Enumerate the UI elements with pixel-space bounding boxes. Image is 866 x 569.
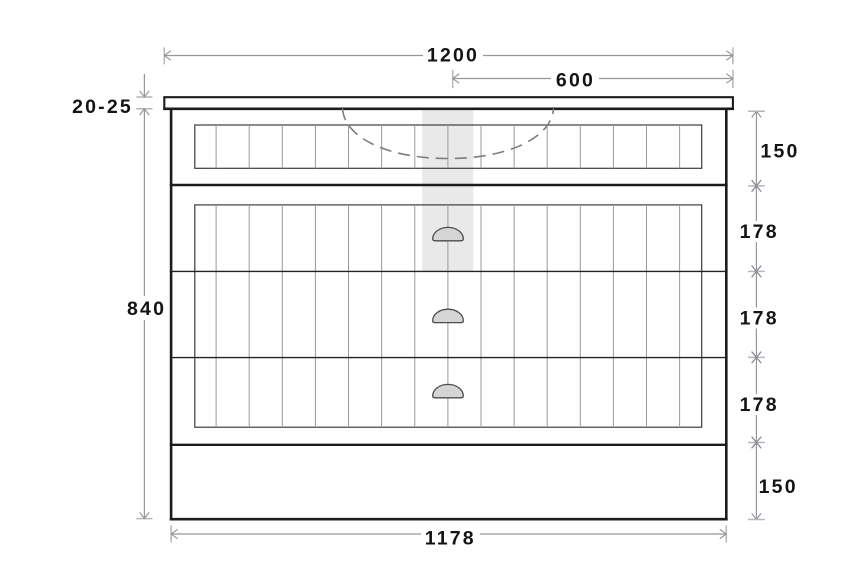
svg-text:150: 150	[759, 476, 798, 498]
svg-text:840: 840	[127, 298, 166, 320]
svg-text:178: 178	[740, 394, 779, 416]
svg-text:1200: 1200	[427, 44, 479, 66]
svg-text:600: 600	[556, 70, 595, 92]
svg-text:178: 178	[740, 221, 779, 243]
svg-text:20-25: 20-25	[72, 96, 133, 118]
svg-text:150: 150	[760, 140, 799, 162]
svg-text:1178: 1178	[425, 528, 476, 550]
svg-text:178: 178	[740, 308, 779, 330]
